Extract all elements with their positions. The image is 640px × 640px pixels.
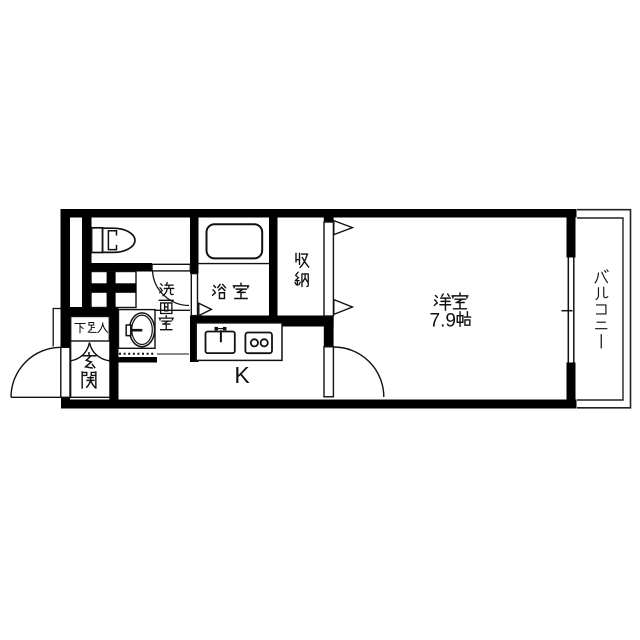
svg-text:7.9: 7.9 <box>430 310 456 331</box>
svg-text:K: K <box>234 362 250 388</box>
